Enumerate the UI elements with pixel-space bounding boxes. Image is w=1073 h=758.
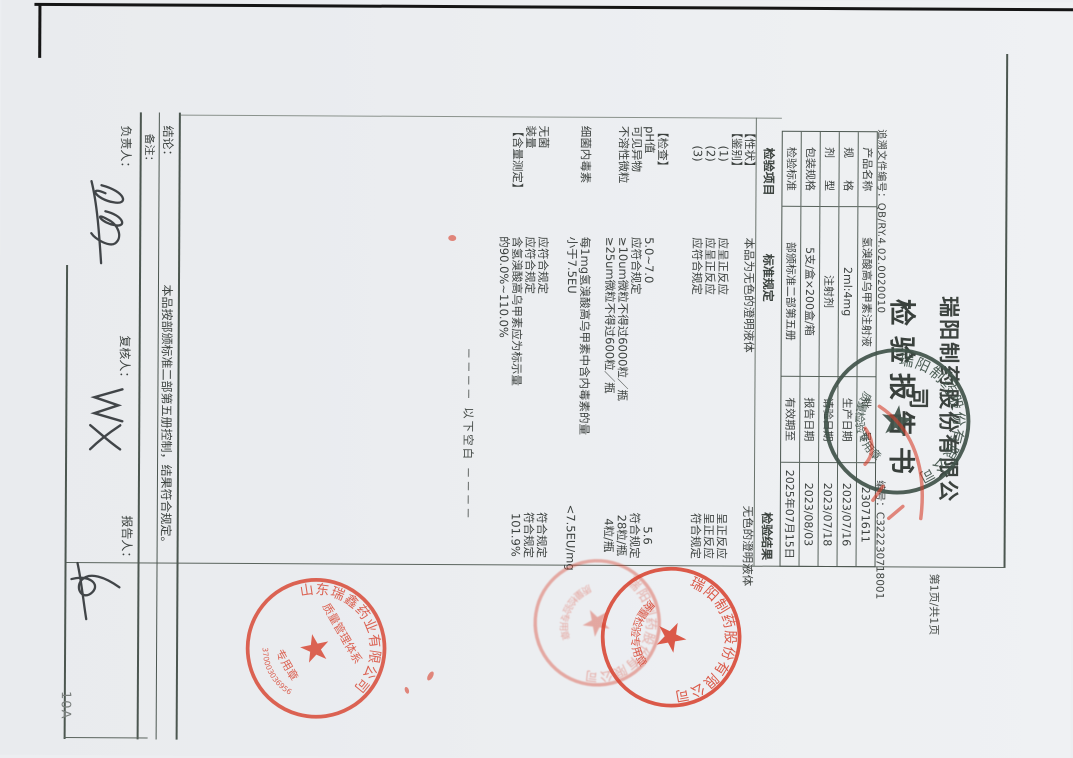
col-item-header: 检验项目 bbox=[760, 118, 778, 226]
red-mark-fragment bbox=[852, 396, 938, 546]
table-row: 细菌内毒素每1mg氢溴酸高乌甲素中含内毒素的量 bbox=[577, 117, 592, 566]
qms-stamp-red: 山东瑞鑫药业有限公司 370003036956 质量管理体系 ★ 专用章 bbox=[214, 546, 419, 751]
reviewer-label: 复核人： bbox=[116, 335, 133, 383]
report-date-value: 2023/08/03 bbox=[800, 462, 819, 566]
table-row: (1)应呈正反应呈正反应 bbox=[715, 117, 730, 566]
table-row: 检验标准 部颁标准二部第五册 有效期至 2025年07月15日 bbox=[781, 132, 802, 566]
test-table-header: 检验项目 标准规定 检验结果 bbox=[754, 118, 782, 567]
inspection-report-page: 追溯文件编号：QB/RY.4.02.0020010 瑞阳制药股份有限公司 第1页… bbox=[0, 0, 1073, 758]
red-mark bbox=[448, 235, 456, 241]
table-row: ≥25um微粒不得过600粒／瓶4粒/瓶 bbox=[602, 117, 617, 566]
table-row: (2)应呈正反应呈正反应 bbox=[702, 117, 717, 566]
dosage-form-label: 剂 型 bbox=[820, 132, 838, 206]
scanned-report-image: 追溯文件编号：QB/RY.4.02.0020010 瑞阳制药股份有限公司 第1页… bbox=[0, 0, 1073, 758]
table-row: (3)应符合规定符合规定 bbox=[689, 117, 704, 566]
table-row: 【性状】本品为无色的澄明液体无色的澄明液体 bbox=[741, 118, 756, 567]
conclusion-top-line bbox=[176, 113, 181, 740]
expiry-value: 2025年07月15日 bbox=[781, 462, 800, 566]
table-row: 的90.0%~110.0% bbox=[496, 116, 511, 565]
standard-value: 部颁标准二部第五册 bbox=[782, 206, 801, 376]
red-mark bbox=[404, 686, 410, 694]
remark-bottom-line bbox=[137, 112, 142, 739]
star-icon: ★ bbox=[571, 599, 622, 645]
spec-label: 规 格 bbox=[839, 132, 857, 206]
responsible-signature bbox=[80, 175, 135, 270]
package-spec-value: 5支/盒×200盒/箱 bbox=[801, 206, 820, 376]
form-page-code: 10A bbox=[58, 691, 73, 720]
table-row: 小于7.5EU<7.5EU/mg bbox=[564, 117, 579, 566]
table-row: 可见异物应符合规定符合规定 bbox=[628, 117, 643, 566]
table-row: 【鉴别】 bbox=[728, 118, 743, 567]
test-table-body: 【性状】本品为无色的澄明液体无色的澄明液体 【鉴别】 (1)应呈正反应呈正反应 … bbox=[496, 116, 756, 566]
responsible-label: 负责人： bbox=[118, 125, 135, 173]
page-indicator: 第1页/共1页 bbox=[926, 574, 942, 636]
table-row: 【检查】 bbox=[654, 117, 669, 566]
package-spec-label: 包装规格 bbox=[801, 132, 819, 206]
expiry-label: 有效期至 bbox=[781, 376, 799, 462]
standard-label: 检验标准 bbox=[782, 132, 800, 206]
footer-bottom-line bbox=[64, 265, 68, 739]
table-row: 无菌应符合规定符合规定 bbox=[535, 117, 550, 566]
scan-edge-line bbox=[34, 3, 1073, 11]
red-mark bbox=[426, 670, 435, 681]
conclusion-label: 结论： bbox=[160, 126, 177, 162]
table-row: 不溶性微粒≥10um微粒不得过6000粒／瓶28粒/瓶 bbox=[615, 117, 630, 566]
table-row: 包装规格 5支/盒×200盒/箱 报告日期 2023/08/03 bbox=[800, 132, 821, 566]
blank-below-note: －－－－ 以下空白 －－－－ bbox=[460, 299, 477, 569]
col-result-header: 检验结果 bbox=[759, 506, 776, 567]
conclusion-text: 本品按部颁标准二部第五册控制，结果符合规定。 bbox=[158, 285, 176, 549]
product-name-label: 产品名称 bbox=[858, 132, 876, 206]
row-gap bbox=[667, 117, 691, 566]
reviewer-signature bbox=[82, 385, 130, 453]
table-row: 【含量测定】含氢溴酸高乌甲素应为标示量101.9% bbox=[509, 116, 524, 565]
dosage-form-value: 注射剂 bbox=[820, 206, 839, 376]
reporter-signature bbox=[65, 553, 123, 628]
col-standard-header: 标准规定 bbox=[759, 226, 777, 506]
footer-right-line bbox=[64, 737, 148, 738]
table-row: pH值5.0~7.05.6 bbox=[641, 117, 656, 566]
remark-label: 备注： bbox=[142, 133, 158, 166]
scan-edge-corner bbox=[38, 4, 41, 58]
top-rule bbox=[1004, 54, 1009, 568]
